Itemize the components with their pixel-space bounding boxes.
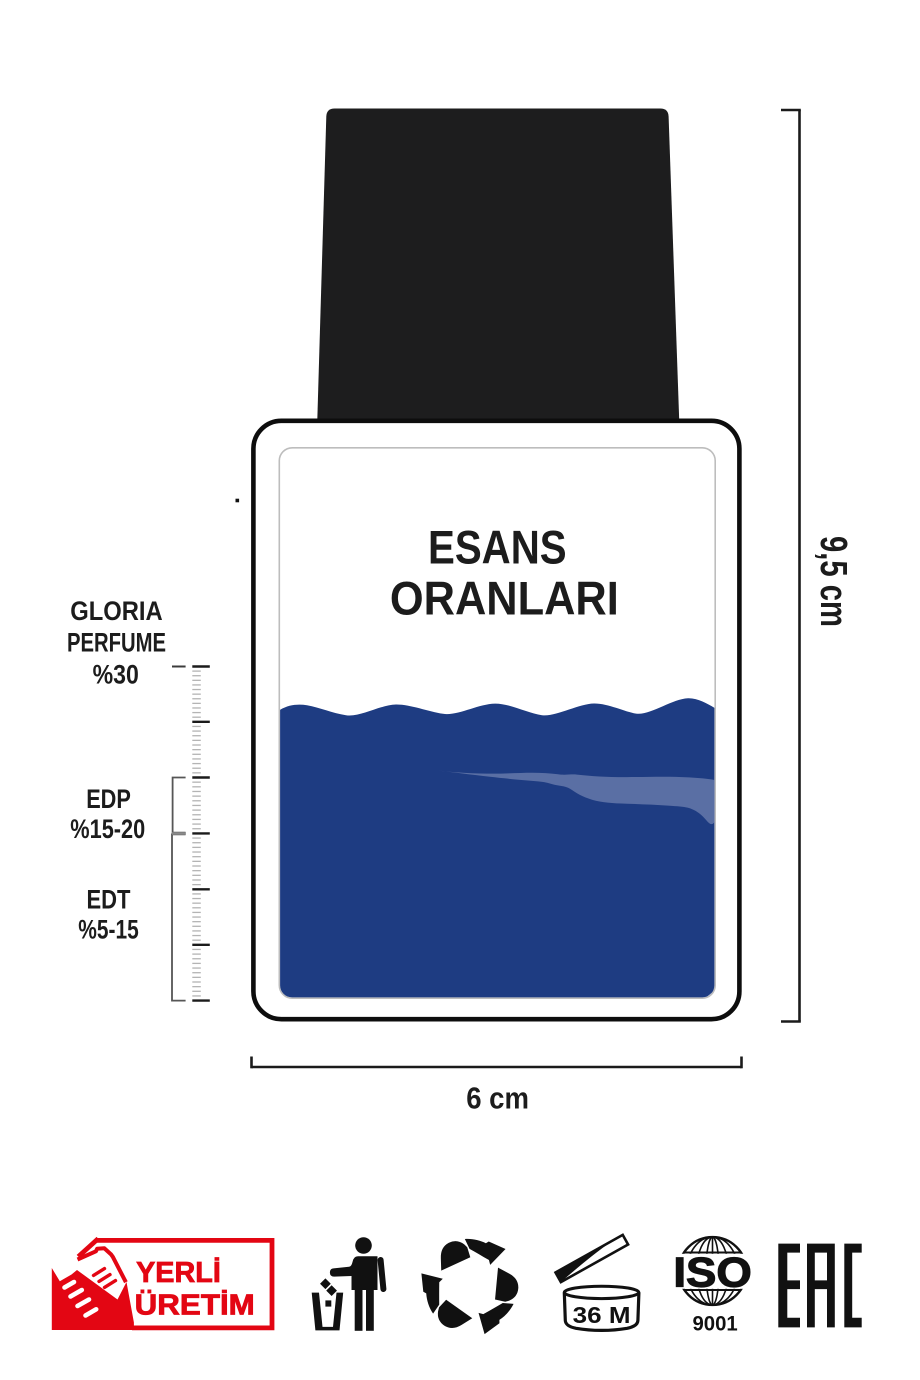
svg-text:9,5 cm: 9,5 cm <box>812 536 854 627</box>
svg-text:9001: 9001 <box>693 1311 738 1335</box>
svg-text:GLORIA: GLORIA <box>70 596 163 626</box>
svg-text:ÜRETİM: ÜRETİM <box>135 1289 255 1322</box>
svg-text:ESANS: ESANS <box>428 521 567 574</box>
svg-text:%30: %30 <box>93 660 139 690</box>
svg-text:EDT: EDT <box>87 884 131 914</box>
svg-text:YERLİ: YERLİ <box>136 1257 221 1289</box>
svg-text:ORANLARI: ORANLARI <box>390 572 619 625</box>
svg-text:%15-20: %15-20 <box>70 814 145 844</box>
svg-text:PERFUME: PERFUME <box>67 628 166 658</box>
svg-text:36 M: 36 M <box>573 1302 631 1328</box>
svg-text:EDP: EDP <box>86 784 131 814</box>
svg-text:6 cm: 6 cm <box>466 1081 529 1116</box>
svg-text:ISO: ISO <box>673 1249 751 1296</box>
svg-text:%5-15: %5-15 <box>78 915 139 945</box>
